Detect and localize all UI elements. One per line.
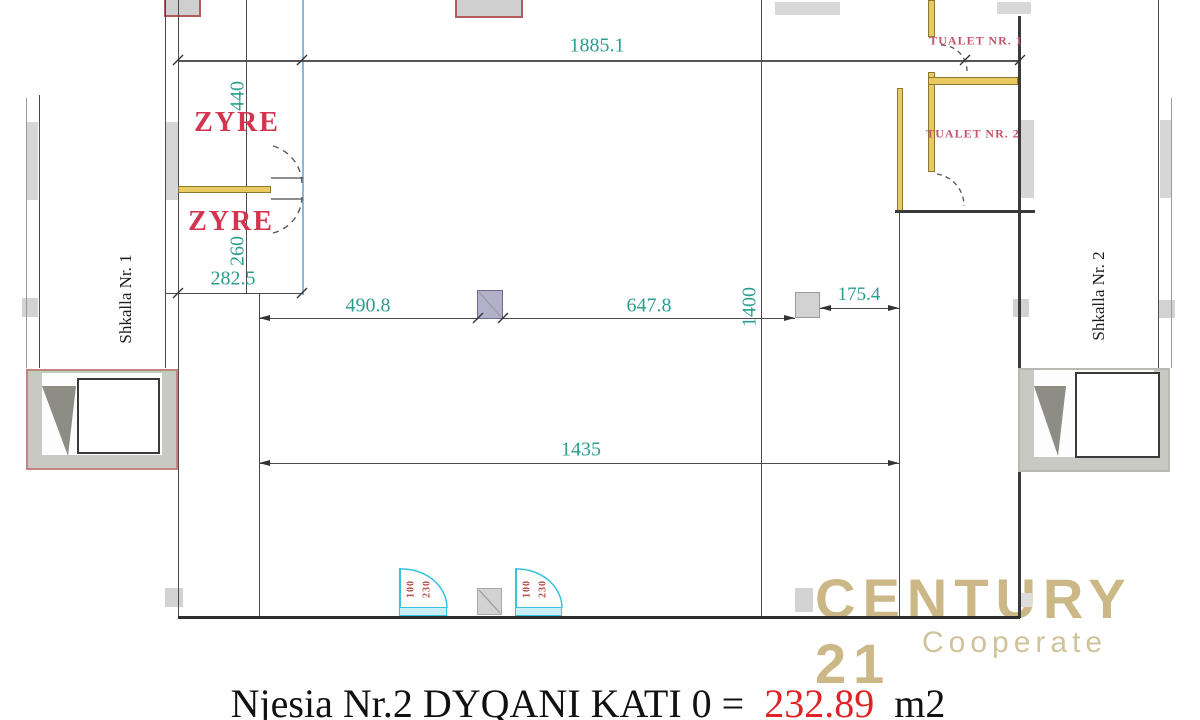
wall-toilet-bottom bbox=[895, 210, 1035, 213]
dim-line-175 bbox=[820, 308, 899, 309]
dim-top-total: 1885.1 bbox=[570, 35, 625, 58]
wall-left-inner-b bbox=[178, 0, 179, 618]
dim-zyre-width: 282.5 bbox=[211, 268, 256, 291]
wall-right-inner bbox=[1018, 16, 1021, 618]
room-label-tualet-2: TUALET NR. 2 bbox=[926, 127, 1019, 142]
room-label-zyre-2: ZYRE bbox=[188, 206, 274, 238]
room-label-zyre-1: ZYRE bbox=[194, 107, 280, 139]
staircase-2-wall-left bbox=[1020, 370, 1034, 470]
window-left-inner bbox=[166, 122, 178, 200]
column-right-upper bbox=[795, 292, 820, 318]
window-left-outer bbox=[26, 122, 38, 200]
extension-line-left bbox=[259, 293, 260, 618]
column-bottom-right-b bbox=[1020, 593, 1032, 607]
dim-span-left: 490.8 bbox=[346, 295, 391, 318]
column-top-right-a bbox=[775, 2, 840, 15]
room-label-shkalla-2: Shkalla Nr. 2 bbox=[1089, 251, 1109, 340]
watermark-tagline: Cooperate bbox=[922, 626, 1107, 660]
column-bottom-right-a bbox=[795, 588, 813, 612]
wall-zyre-bottom bbox=[165, 293, 303, 294]
wall-right-outer bbox=[1158, 0, 1159, 368]
caption-area-unit: m2 bbox=[894, 681, 945, 720]
dim-depth: 1400 bbox=[739, 287, 762, 327]
staircase-1-wall-left bbox=[28, 371, 42, 468]
partition-zyre-blue bbox=[302, 0, 304, 295]
staircase-1-wall-bottom bbox=[28, 455, 176, 468]
door-1-width-label: 100 bbox=[406, 580, 417, 598]
wall-left-outer bbox=[39, 95, 40, 368]
column-bottom-center bbox=[477, 588, 502, 615]
column-mid-left-outer bbox=[22, 298, 38, 317]
staircase-2-wall-bottom bbox=[1020, 457, 1168, 470]
wall-toilet-outer bbox=[897, 88, 903, 212]
wall-toilet1-left bbox=[928, 0, 935, 37]
room-label-tualet-1: TUALET NR. 1 bbox=[929, 34, 1022, 49]
caption-area-value: 232.89 bbox=[764, 681, 874, 720]
column-mid-right-inner bbox=[1013, 299, 1029, 317]
staircase-1-top-line bbox=[28, 371, 176, 373]
door-2-threshold bbox=[515, 607, 562, 616]
door-2-leaf bbox=[515, 568, 517, 608]
wall-left-outer-edge bbox=[26, 98, 27, 368]
door-1-threshold bbox=[399, 607, 447, 616]
plan-caption: Njesia Nr.2 DYQANI KATI 0 = 232.89 m2 bbox=[231, 680, 946, 720]
column-bottom-left bbox=[165, 588, 183, 607]
dim-line-1435 bbox=[259, 463, 899, 464]
wall-right-outer-edge bbox=[1171, 98, 1172, 368]
dim-zyre2-height: 260 bbox=[227, 236, 250, 266]
column-top-left bbox=[164, 0, 201, 17]
partition-right bbox=[899, 213, 900, 617]
door-2-width-label: 100 bbox=[522, 580, 533, 598]
column-top-right-b bbox=[997, 2, 1031, 14]
dim-span-lower: 1435 bbox=[561, 439, 601, 462]
caption-unit-label: Njesia Nr.2 DYQANI KATI 0 = bbox=[231, 681, 745, 720]
floor-plan-canvas: CENTURY 21 Cooperate bbox=[0, 0, 1200, 720]
column-top-center bbox=[455, 0, 523, 18]
wall-toilet2-top bbox=[928, 77, 1018, 85]
dim-offset-right: 175.4 bbox=[838, 284, 881, 306]
wall-bottom bbox=[178, 616, 1020, 619]
staircase-1-wall-right bbox=[162, 371, 176, 468]
door-1-leaf bbox=[399, 568, 401, 608]
column-center-upper bbox=[477, 290, 503, 319]
window-right-inner bbox=[1021, 120, 1034, 198]
dim-span-right: 647.8 bbox=[627, 295, 672, 318]
elevator-2 bbox=[1075, 372, 1160, 458]
door-2-height-label: 230 bbox=[538, 580, 549, 598]
room-label-shkalla-1: Shkalla Nr. 1 bbox=[116, 254, 136, 343]
wall-toilet2-left bbox=[928, 72, 935, 172]
wall-zyre-divider bbox=[178, 186, 271, 193]
dim-line-490 bbox=[259, 318, 478, 319]
dim-line-top bbox=[178, 60, 1020, 62]
wall-left-inner-a bbox=[165, 0, 166, 368]
elevator-1 bbox=[77, 378, 160, 454]
door-1-height-label: 230 bbox=[422, 580, 433, 598]
column-mid-right-outer bbox=[1158, 300, 1175, 318]
